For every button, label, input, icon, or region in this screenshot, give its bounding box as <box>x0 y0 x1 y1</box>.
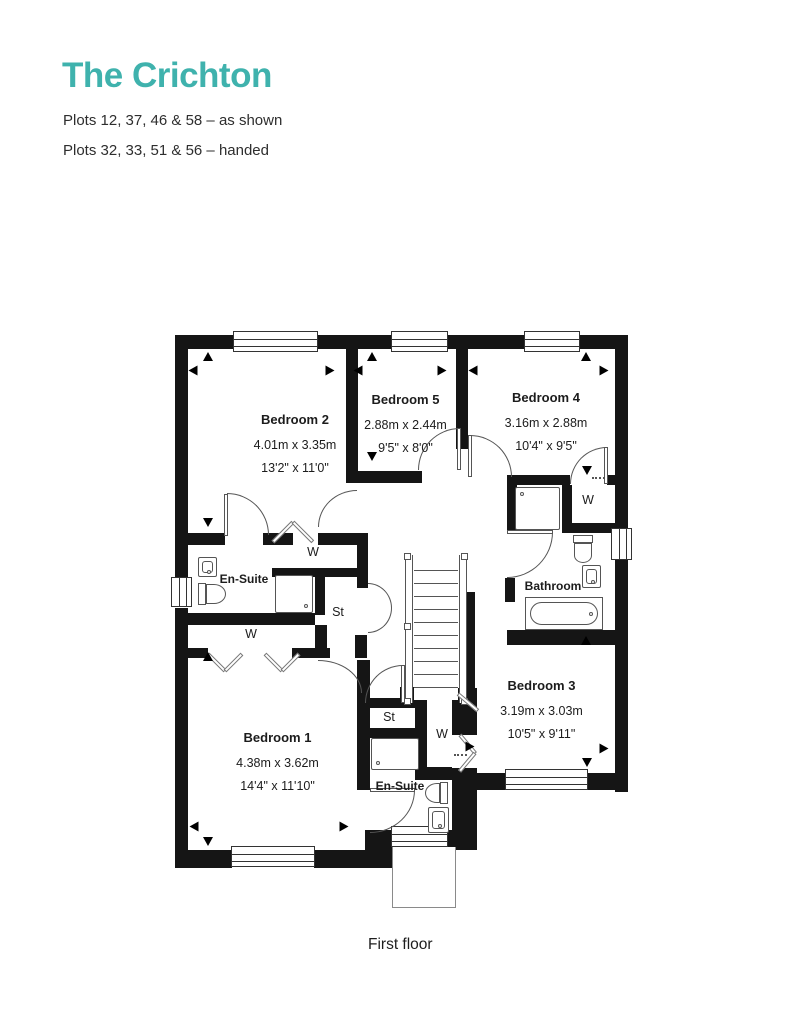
dotted-line <box>592 477 605 479</box>
toilet <box>573 535 593 563</box>
dimension-arrow <box>466 742 475 752</box>
bathtub <box>525 597 603 630</box>
door-arc <box>365 665 403 703</box>
wall-segment <box>507 630 628 645</box>
label-store-mid: St <box>332 605 344 619</box>
door-arc <box>368 583 392 608</box>
bifold-door <box>224 653 244 673</box>
porch-outline <box>392 847 456 908</box>
bifold-door <box>281 653 301 673</box>
door-arc <box>507 532 553 578</box>
stair-post <box>404 553 411 560</box>
shower-tray <box>371 738 419 770</box>
wall-segment <box>175 850 232 868</box>
plots-handed: Plots 32, 33, 51 & 56 – handed <box>63 142 269 159</box>
door-arc <box>368 608 392 633</box>
floor-plan: Bedroom 2 4.01m x 3.35m13'2" x 11'0" Bed… <box>175 330 630 922</box>
wall-segment <box>314 850 392 868</box>
dimension-arrow <box>190 822 199 832</box>
wall-segment <box>182 613 315 625</box>
wall-segment <box>615 560 628 792</box>
toilet <box>198 583 226 605</box>
wall-segment <box>505 578 515 602</box>
label-wardrobe-mid: W <box>245 627 257 641</box>
sink <box>198 557 217 577</box>
wall-segment <box>175 608 188 868</box>
dotted-line <box>454 754 467 756</box>
window <box>505 769 588 790</box>
dimension-arrow <box>340 822 349 832</box>
dimension-arrow <box>367 452 377 461</box>
shower-tray <box>515 487 560 530</box>
label-wardrobe-bottom: W <box>436 727 448 741</box>
room-label-bedroom-1: Bedroom 1 4.38m x 3.62m14'4" x 11'10" <box>190 730 365 798</box>
dimension-arrow <box>581 636 591 645</box>
floorplan-page: The Crichton Plots 12, 37, 46 & 58 – as … <box>0 0 800 1036</box>
label-ensuite-bottom: En-Suite <box>376 779 425 793</box>
window <box>524 331 580 352</box>
wall-segment <box>507 475 570 485</box>
stair-post <box>404 698 411 705</box>
toilet <box>425 782 448 804</box>
dimension-arrow <box>326 366 335 376</box>
dimension-arrow <box>469 366 478 376</box>
wall-segment <box>477 773 507 790</box>
stair-post <box>461 553 468 560</box>
dimension-arrow <box>600 744 609 754</box>
plots-as-shown: Plots 12, 37, 46 & 58 – as shown <box>63 112 282 129</box>
wall-segment <box>188 533 225 545</box>
wall-segment <box>562 485 572 525</box>
wall-segment <box>448 335 525 349</box>
bifold-door <box>292 521 315 544</box>
dimension-arrow <box>203 652 213 661</box>
door-leaf <box>224 494 228 536</box>
stair-rail <box>459 555 467 703</box>
dimension-arrow <box>354 366 363 376</box>
door-leaf <box>401 665 405 703</box>
page-title: The Crichton <box>62 56 272 96</box>
door-arc <box>318 660 362 693</box>
room-label-bedroom-4: Bedroom 4 3.16m x 2.88m10'4" x 9'5" <box>475 390 617 458</box>
door-arc <box>227 493 269 535</box>
wall-segment <box>175 335 188 580</box>
shower-tray <box>275 575 313 613</box>
wall-segment <box>452 768 477 850</box>
sink <box>428 807 449 833</box>
label-ensuite-left: En-Suite <box>220 572 269 586</box>
dimension-arrow <box>203 837 213 846</box>
window <box>233 331 318 352</box>
label-store-bottom: St <box>383 710 395 724</box>
wall-segment <box>317 335 392 349</box>
sink <box>582 565 601 588</box>
wall-segment <box>355 635 367 658</box>
label-bathroom: Bathroom <box>525 579 582 593</box>
window <box>391 331 448 352</box>
window <box>231 846 315 867</box>
stair-treads <box>414 558 458 700</box>
wall-segment <box>318 533 357 545</box>
window <box>171 577 192 607</box>
stair-post <box>404 623 411 630</box>
door-arc <box>318 490 357 527</box>
label-wardrobe-top: W <box>307 545 319 559</box>
room-label-bedroom-3: Bedroom 3 3.19m x 3.03m10'5" x 9'11" <box>469 678 614 746</box>
staircase <box>405 555 467 703</box>
dimension-arrow <box>367 352 377 361</box>
window <box>611 528 632 560</box>
wall-segment <box>586 773 628 790</box>
wall-segment <box>357 533 368 588</box>
dimension-arrow <box>582 758 592 767</box>
floor-caption: First floor <box>368 936 433 954</box>
door-leaf <box>507 530 553 534</box>
room-label-bedroom-5: Bedroom 5 2.88m x 2.44m9'5" x 8'0" <box>343 392 468 460</box>
wall-segment <box>315 570 325 615</box>
dimension-arrow <box>203 518 213 527</box>
dimension-arrow <box>189 366 198 376</box>
wall-segment <box>607 475 628 485</box>
door-leaf <box>468 435 472 477</box>
label-wardrobe-right: W <box>582 493 594 507</box>
dimension-arrow <box>581 352 591 361</box>
dimension-arrow <box>203 352 213 361</box>
dimension-arrow <box>582 466 592 475</box>
dimension-arrow <box>438 366 447 376</box>
dimension-arrow <box>600 366 609 376</box>
wall-segment <box>365 830 392 850</box>
